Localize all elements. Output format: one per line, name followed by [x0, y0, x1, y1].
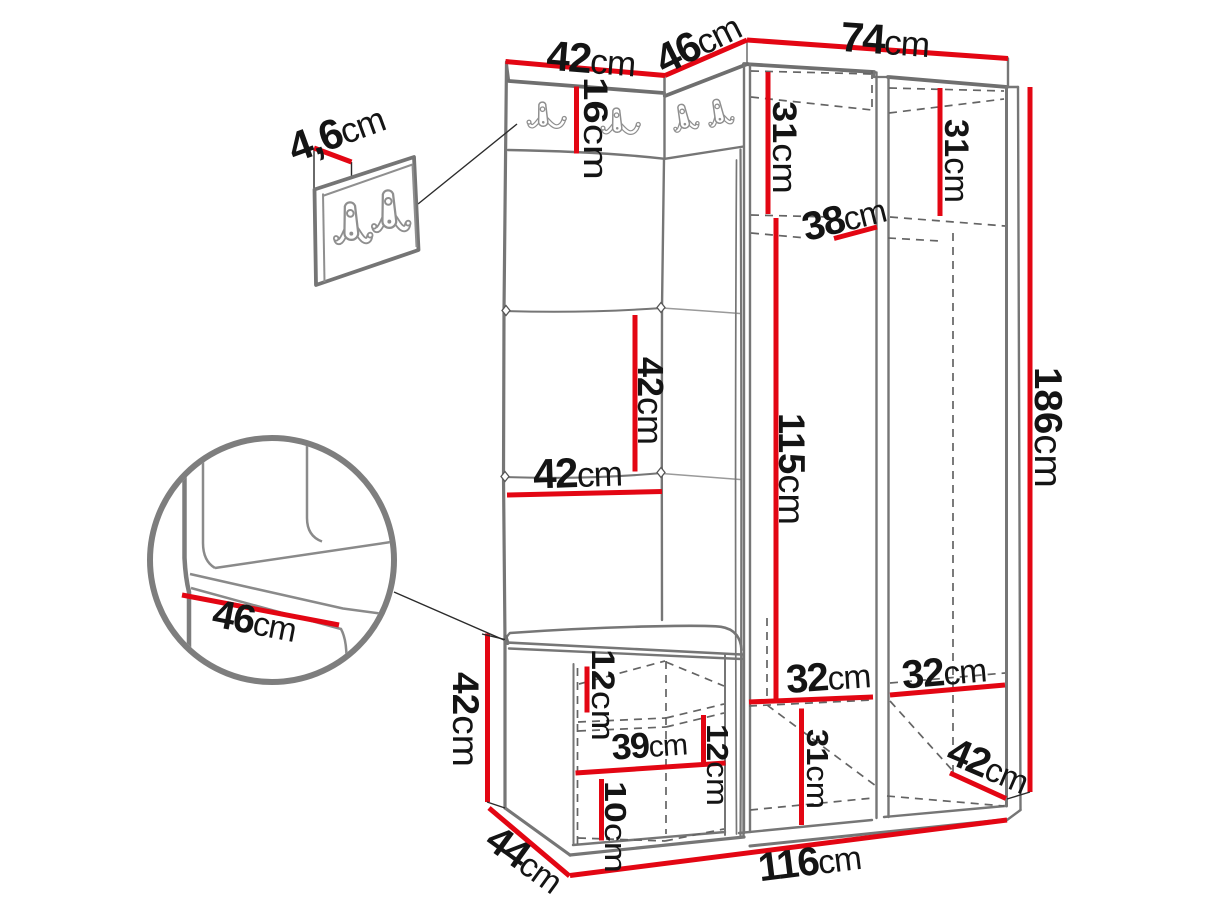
svg-text:12cm: 12cm	[585, 649, 621, 741]
svg-text:115cm: 115cm	[771, 413, 812, 525]
svg-text:31cm: 31cm	[937, 119, 975, 203]
svg-text:10cm: 10cm	[598, 781, 633, 873]
svg-text:31cm: 31cm	[765, 101, 803, 194]
svg-text:186cm: 186cm	[1026, 367, 1069, 488]
svg-text:31cm: 31cm	[800, 729, 835, 809]
svg-text:12cm: 12cm	[700, 724, 735, 806]
svg-text:16cm: 16cm	[576, 77, 614, 180]
svg-text:42cm: 42cm	[445, 672, 486, 767]
svg-text:42cm: 42cm	[630, 357, 671, 445]
